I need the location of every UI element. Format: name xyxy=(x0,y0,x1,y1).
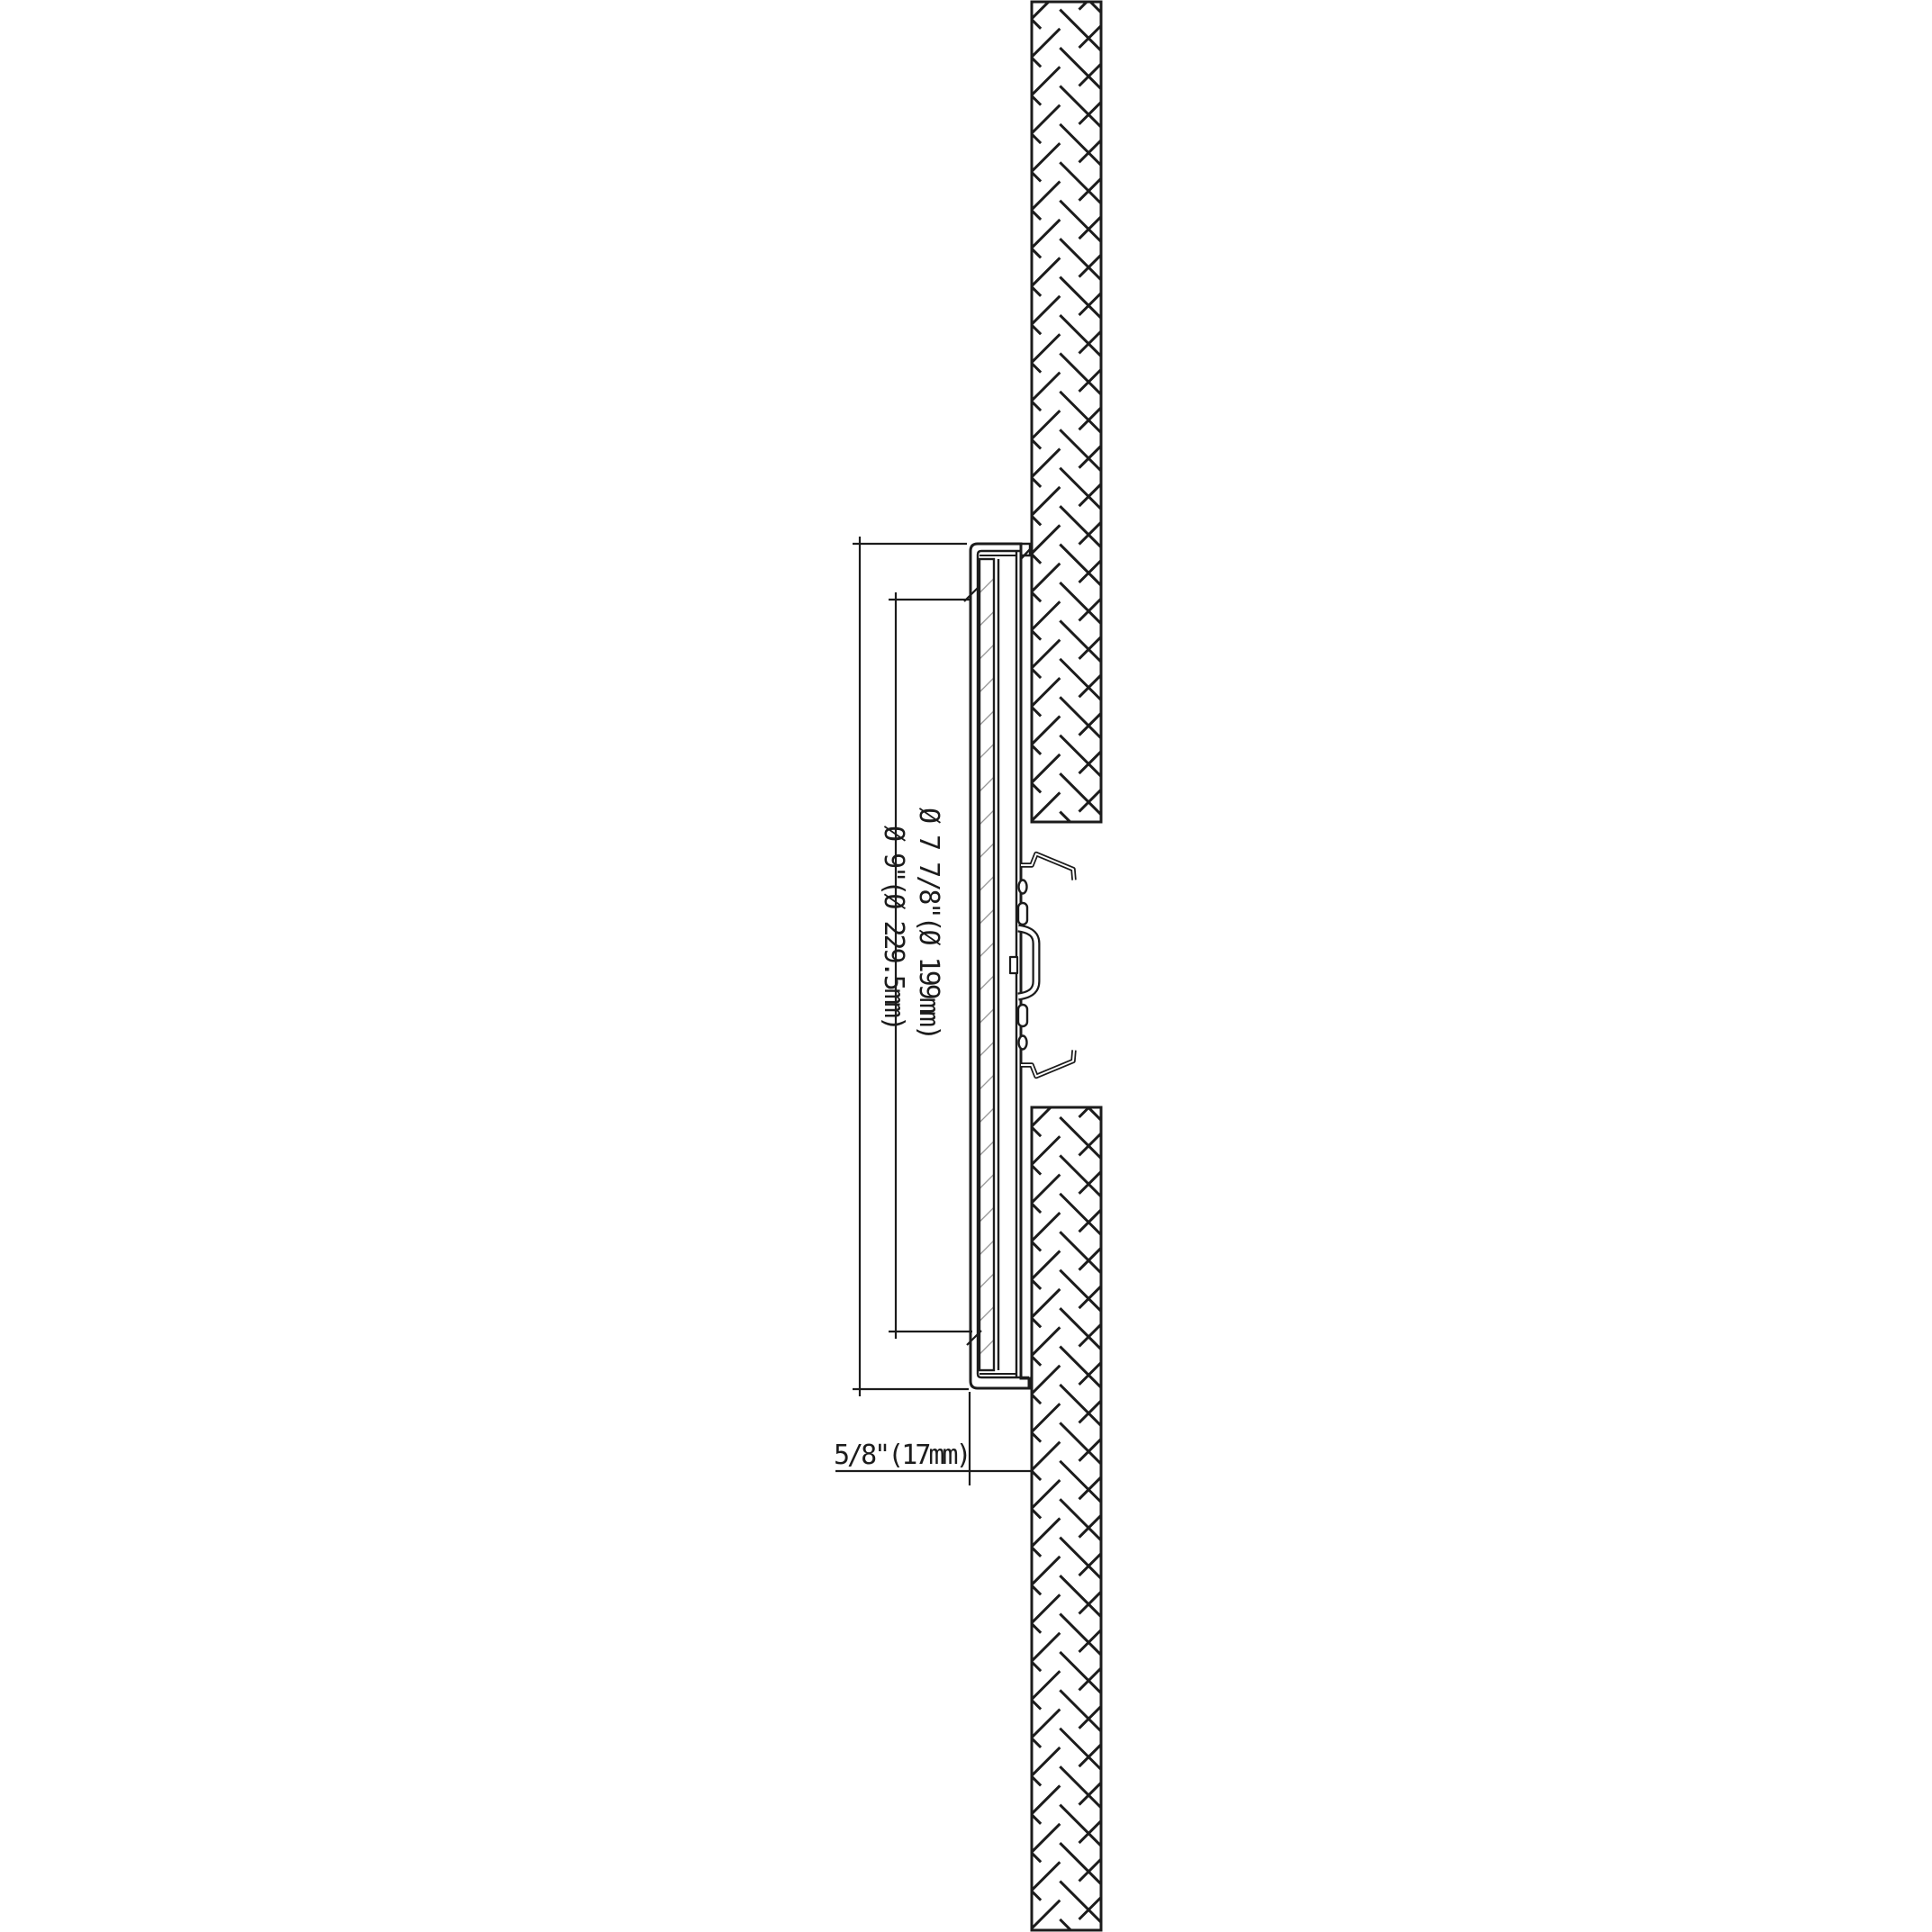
dimension-overall-diameter xyxy=(853,537,969,1396)
technical-drawing: Ø 9"(Ø 229.5mm) Ø 7 7/8"(Ø 199mm) 5/8"(1… xyxy=(0,0,1932,1932)
ceiling-section-upper xyxy=(1032,2,1101,822)
spring-clip-bottom xyxy=(1018,1005,1074,1077)
rivet-top xyxy=(1019,880,1027,894)
fixture-body xyxy=(971,544,1031,1388)
adjustment-slot-bottom xyxy=(1018,1005,1027,1026)
bracket-tab xyxy=(1010,957,1017,973)
dimension-protrusion xyxy=(835,1392,1034,1485)
adjustment-slot-top xyxy=(1018,903,1027,925)
dim-label-protrusion: 5/8"(17mm) xyxy=(834,1440,970,1471)
drawing-canvas: Ø 9"(Ø 229.5mm) Ø 7 7/8"(Ø 199mm) 5/8"(1… xyxy=(0,0,1932,1932)
rivet-bottom xyxy=(1019,1036,1027,1050)
lens-panel xyxy=(980,559,994,1370)
dim-label-aperture-diameter: Ø 7 7/8"(Ø 199mm) xyxy=(913,808,944,1038)
ceiling-section-lower xyxy=(1032,1107,1101,1930)
spring-clip-top xyxy=(1018,854,1074,925)
dim-label-overall-diameter: Ø 9"(Ø 229.5mm) xyxy=(878,826,909,1029)
